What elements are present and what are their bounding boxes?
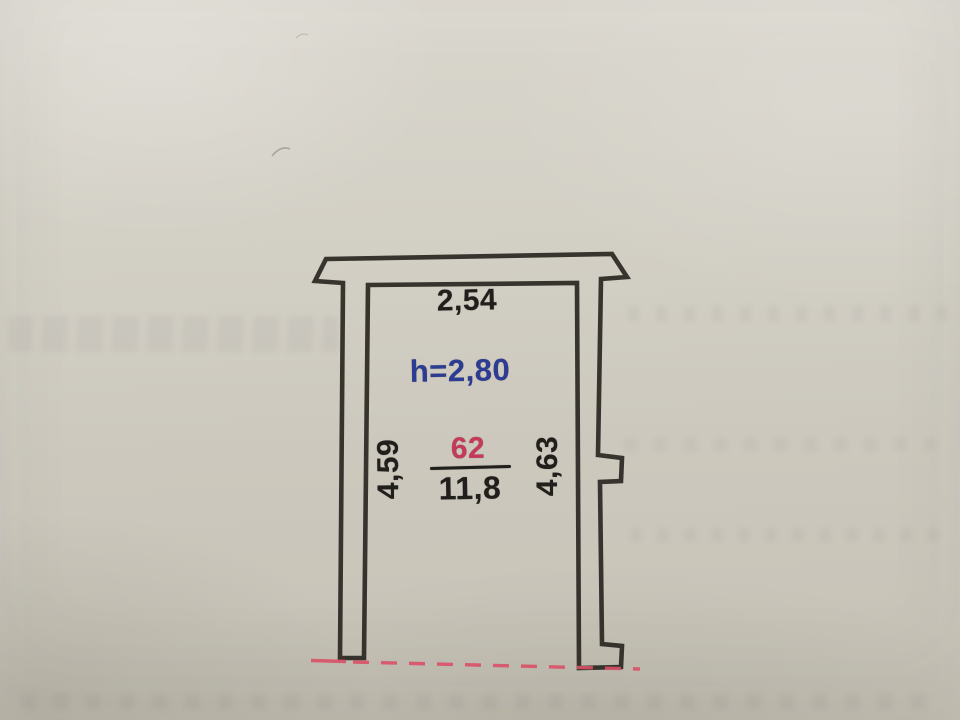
dimension-left-length: 4,59 bbox=[374, 419, 405, 519]
unit-number: 62 bbox=[428, 433, 509, 464]
area-value: 11,8 bbox=[428, 471, 513, 504]
ceiling-height-label: h=2,80 bbox=[385, 354, 536, 388]
paper-scratch bbox=[272, 148, 290, 156]
dimension-top-width: 2,54 bbox=[387, 284, 548, 317]
paper-scratch bbox=[296, 34, 308, 38]
scanned-paper-background: 2,54 h=2,80 62 11,8 4,59 4,63 bbox=[0, 0, 960, 720]
boundary-solid-segment bbox=[311, 661, 346, 662]
dimension-right-length: 4,63 bbox=[533, 416, 563, 516]
